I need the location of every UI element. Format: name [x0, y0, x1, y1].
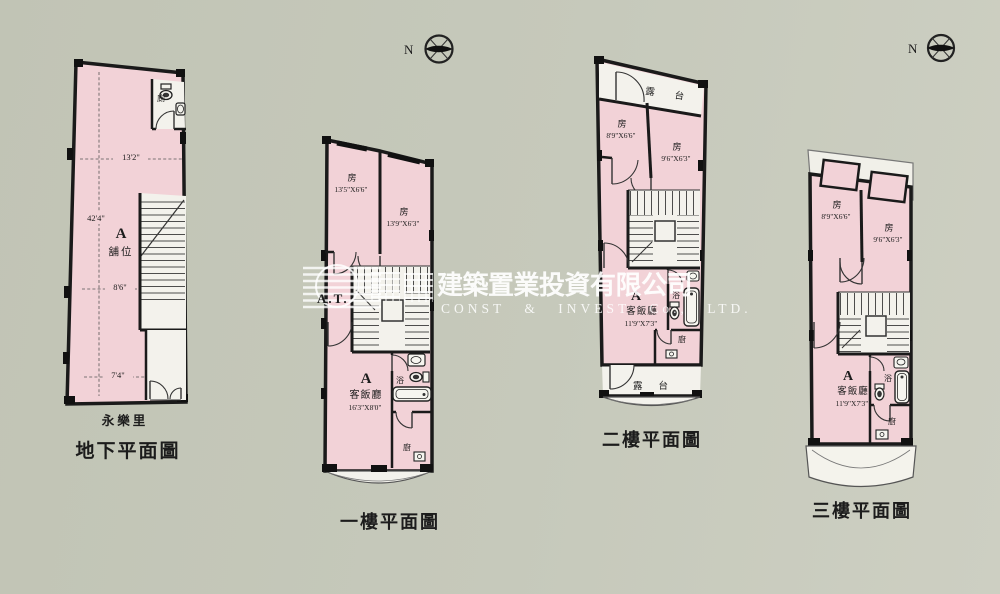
toilet-fixture-icon — [670, 302, 679, 319]
floor3-room1-dims: 8'9"X6'6" — [821, 212, 850, 221]
floor2-bath-label: 浴 — [672, 290, 680, 300]
floor3-living-dims: 11'9"X7'3" — [836, 399, 869, 408]
compass-rose-left: N — [404, 36, 453, 63]
floor3-living-label: 客飯廳 — [837, 385, 869, 397]
floor3-room-divider-wall — [861, 190, 862, 262]
toilet-fixture-icon — [410, 372, 429, 382]
floor1-unit-letter: A — [361, 371, 372, 387]
compass-needle — [426, 46, 453, 52]
floor1-room2-dims: 13'9"X6'3" — [387, 219, 420, 228]
floor3-stairs — [838, 292, 910, 354]
floor1-title: 一樓平面圖 — [340, 511, 440, 532]
sink-icon — [408, 354, 425, 366]
bathtub-icon — [393, 387, 431, 401]
floor1-living-label: 客飯廳 — [350, 388, 383, 401]
floor2-room1-dims: 8'9"X6'6" — [606, 131, 635, 140]
basement-title: 地下平面圖 — [75, 439, 180, 462]
floor3-unit-letter: A — [843, 369, 854, 384]
toilet-label: 廁 — [157, 93, 165, 103]
bathtub-icon — [684, 288, 699, 326]
floor2-room2-dims: 9'6"X6'3" — [661, 154, 690, 163]
floor2-stairs — [628, 190, 700, 268]
basement-street-label: 永樂里 — [101, 413, 149, 428]
compass-n-label: N — [404, 42, 414, 57]
floor2-living-label: 客飯廳 — [626, 305, 658, 317]
plan-floor1: 房 13'5"X6'6" 房 13'9"X6'3" A 客飯廳 16 — [321, 136, 440, 532]
kitchen-sink-icon — [876, 430, 888, 439]
floor2-living-dims: 11'9"X7'3" — [625, 319, 658, 328]
floor3-title: 三樓平面圖 — [812, 500, 912, 521]
floor3-balcony — [806, 446, 916, 487]
dim-top: 13'2" — [122, 152, 140, 162]
sink-icon — [176, 103, 185, 115]
floor2-kitchen-label: 廚 — [678, 334, 686, 344]
sink-icon — [687, 271, 699, 281]
basement-entry — [146, 330, 186, 400]
floor2-terrace-bottom-label: 露台 — [633, 380, 684, 392]
toilet-fixture-icon — [875, 384, 884, 400]
plan-floor3: 房 8'9"X6'6" 房 9'6"X6'3" A 客飯廳 11'9"X7'3" — [806, 150, 916, 521]
sink-icon — [894, 357, 908, 368]
floor2-title: 二樓平面圖 — [602, 429, 702, 450]
floor1-room1-dims: 13'5"X6'6" — [335, 185, 368, 194]
floor3-room2-label: 房 — [884, 222, 893, 233]
floor3-bath-label: 浴 — [884, 373, 892, 383]
floor1-room1-label: 房 — [347, 172, 356, 183]
floor2-room2-label: 房 — [672, 141, 681, 152]
brochure-page: 廁 13'2" 42'4" 8'6" 7'4" A 舖位 — [0, 0, 1000, 594]
floor1-living-dims: 16'3"X8'0" — [349, 403, 382, 412]
floor1-bath-label: 浴 — [396, 375, 404, 385]
floor1-room2-label: 房 — [399, 206, 408, 217]
floor2-bottom-terrace: 露台 — [599, 365, 702, 406]
basement-unit-type: 舖位 — [109, 245, 134, 258]
compass-needle — [928, 45, 955, 51]
floor1-kitchen-label: 廚 — [403, 442, 411, 452]
basement-stairs — [140, 193, 186, 330]
plan-basement: 廁 13'2" 42'4" 8'6" 7'4" A 舖位 — [63, 59, 188, 462]
floor3-kitchen-label: 廚 — [888, 416, 896, 426]
compass-rose-right: N — [908, 35, 955, 61]
basement-toilet-room: 廁 — [152, 79, 186, 129]
floorplans-drawing: 廁 13'2" 42'4" 8'6" 7'4" A 舖位 — [0, 0, 1000, 594]
kitchen-sink-icon — [666, 350, 677, 358]
basement-unit-letter: A — [116, 226, 127, 242]
plan-floor2: 露台 房 8'9"X6'6" 房 9'6"X6'3" — [594, 56, 708, 450]
floor2-unit-letter: A — [631, 289, 642, 304]
floor3-room1-label: 房 — [832, 199, 841, 210]
floor2-room1-label: 房 — [617, 118, 626, 129]
compass-n-label: N — [908, 41, 918, 56]
dim-bottom: 7'4" — [111, 370, 125, 380]
floor3-room2-dims: 9'6"X6'3" — [873, 235, 902, 244]
dim-mid: 8'6" — [113, 282, 127, 292]
dim-left: 42'4" — [87, 213, 105, 223]
floor1-stairs — [352, 266, 430, 352]
kitchen-sink-icon — [414, 452, 425, 461]
bathtub-icon — [895, 371, 909, 403]
